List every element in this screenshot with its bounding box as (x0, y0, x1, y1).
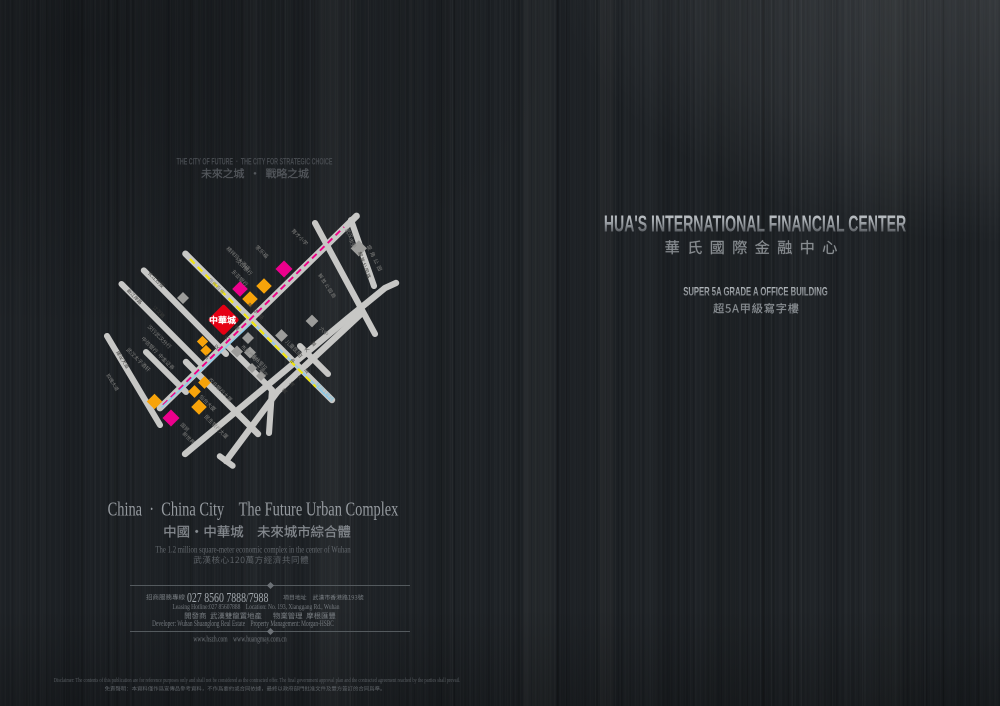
svg-text:Developer: Wuhan Shuanglong Re: Developer: Wuhan Shuanglong Real Estate … (152, 620, 334, 628)
svg-text:www.hszh.com www.huangmay.c: www.hszh.com www.huangmay.com.cn (193, 634, 287, 643)
svg-text:The 1.2 million square-meter e: The 1.2 million square-meter economic co… (155, 544, 350, 554)
svg-text:Leasing Hotline:027 85607888: Leasing Hotline:027 85607888 Location: N… (173, 603, 340, 611)
svg-text:HUA'S INTERNATIONAL FINANCIAL: HUA'S INTERNATIONAL FINANCIAL CENTER (604, 211, 906, 238)
svg-text:Disclaimer: The contents of th: Disclaimer: The contents of this publica… (54, 676, 460, 684)
svg-text:THE CITY OF FUTURE · THE CIT: THE CITY OF FUTURE · THE CITY FOR STRATE… (177, 156, 333, 167)
svg-text:China · China City The Fu: China · China City The Future Urban Comp… (108, 498, 399, 520)
svg-text:SUPER 5A GRADE A OFFICE BUILDI: SUPER 5A GRADE A OFFICE BUILDING (683, 286, 828, 299)
